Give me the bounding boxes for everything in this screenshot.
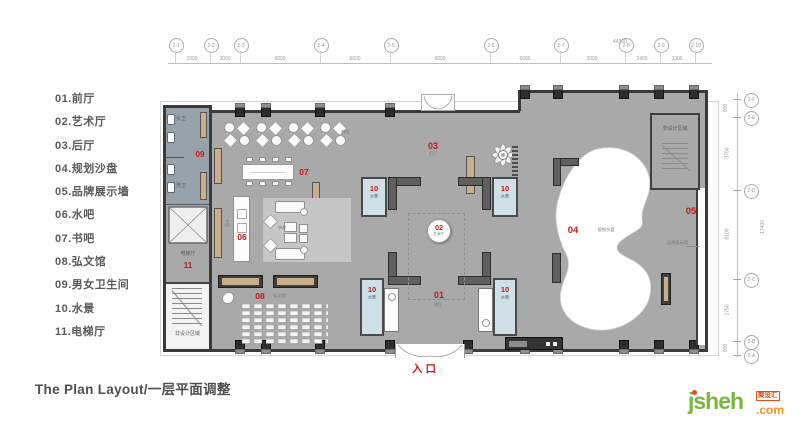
dimension-tick (733, 355, 741, 356)
art-hall-text: 艺术厅 (434, 233, 445, 237)
column (689, 88, 699, 99)
grid-bubble: 2-E (744, 111, 759, 126)
front-hall-text: 前厅 (434, 303, 443, 307)
elevator-hall-label: 电梯厅 (176, 252, 200, 258)
chair (246, 181, 253, 186)
dimension-value: 900 (723, 344, 729, 352)
room-number-07: 07 (296, 168, 312, 177)
legend-item: 07.书吧 (55, 230, 129, 253)
room-number-06: 06 (234, 233, 250, 242)
floor-plan: 女卫 09 男卫 电梯厅 11 非设计区域 (160, 88, 722, 360)
water-text: 水景 (368, 295, 376, 301)
dimension-tick (733, 117, 741, 118)
logo-dot-icon (692, 390, 697, 395)
dimension-value: 8100 (725, 228, 731, 239)
water-text: 水景 (501, 194, 509, 200)
stair-room-ne: 非设计区域 (650, 113, 700, 190)
side-table (299, 224, 308, 233)
chair (285, 181, 292, 186)
dimension-tick (733, 190, 741, 191)
lounge-chair (300, 246, 308, 254)
water-text: 水景 (501, 295, 509, 301)
rear-door (421, 94, 455, 111)
room-number-10: 10 (368, 285, 376, 294)
column (261, 106, 271, 117)
column (553, 88, 563, 99)
legend-item: 06.水吧 (55, 206, 129, 229)
grid-stub (240, 51, 241, 63)
lecture-chairs-grid (242, 304, 328, 346)
legend-item: 11.电梯厅 (55, 323, 129, 346)
water-text: 水景 (370, 194, 378, 200)
wall-bench (466, 156, 475, 194)
chair (246, 157, 253, 162)
logo-tld: .com (756, 403, 784, 417)
grid-stub (695, 51, 696, 63)
grid-stub (625, 51, 626, 63)
sheet-title: The Plan Layout/一层平面调整 (35, 378, 231, 398)
dimension-value: 2400 (636, 56, 647, 62)
water-feature: 10 水景 (361, 177, 387, 217)
chair (272, 181, 279, 186)
water-bar-text: 水吧 (224, 219, 228, 228)
grid-stub (175, 51, 176, 63)
vanity-counter (200, 112, 207, 138)
legend-item: 01.前厅 (55, 90, 129, 113)
planter-wall (482, 177, 491, 210)
screen-wall (512, 146, 518, 178)
non-design-label: 非设计区域 (652, 127, 698, 133)
chair (259, 157, 266, 162)
long-table (242, 164, 294, 180)
dining-cluster (224, 122, 252, 148)
dimension-value: 3000 (219, 56, 230, 62)
stair-room: 非设计区域 (166, 282, 209, 349)
legend-item: 08.弘文馆 (55, 253, 129, 276)
legend-item: 09.男女卫生间 (55, 276, 129, 299)
book-bar-text: 书吧 (341, 130, 350, 134)
grid-bubble: 2-6 (484, 38, 499, 53)
planter-wall (553, 158, 561, 186)
grid-stub (560, 51, 561, 63)
women-toilet-label: 女卫 (176, 117, 186, 123)
room-number-05: 05 (680, 207, 702, 217)
planter-bench (273, 275, 318, 288)
dimension-value: 3750 (725, 147, 731, 158)
room-number-10: 10 (501, 184, 509, 193)
room-number-08: 08 (252, 292, 268, 301)
dimension-tick (733, 279, 741, 280)
jsheh-logo: jsheh 聚设汇 .com (688, 386, 800, 422)
non-design-label: 非设计区域 (166, 332, 209, 338)
restroom-zone: 女卫 09 男卫 (166, 108, 209, 205)
dimension-overall: 44300 (613, 39, 627, 45)
lounge-rug: 书吧 (263, 198, 351, 262)
dimension-overall: 17400 (760, 220, 766, 234)
coffee-table (284, 233, 297, 243)
room-number-11: 11 (180, 262, 196, 270)
column (619, 88, 629, 99)
grid-bubble: 2-4 (314, 38, 329, 53)
top-dimension-line (168, 63, 712, 64)
dimension-value: 6600 (274, 56, 285, 62)
grid-bubble: 2-5 (384, 38, 399, 53)
lecture-hall-text: 弘文馆 (273, 294, 286, 298)
dimension-value: 3750 (725, 304, 731, 315)
legend-item: 02.艺术厅 (55, 113, 129, 136)
elevator-shaft (168, 206, 208, 244)
column (520, 88, 530, 99)
water-feature: 10 水景 (492, 177, 518, 217)
water-feature: 10 水景 (493, 278, 517, 336)
leader-line (687, 246, 699, 247)
column (235, 106, 245, 117)
wall-bench (214, 208, 222, 258)
grid-stub (320, 51, 321, 63)
vanity-counter (200, 172, 207, 200)
men-toilet-label: 男卫 (176, 184, 186, 190)
chair (272, 157, 279, 162)
column (315, 106, 325, 117)
planter-bench (218, 275, 263, 288)
toilet-fixture (167, 182, 175, 193)
floor-plan-sheet: 01.前厅 02.艺术厅 03.后厅 04.规划沙盘 05.品牌展示墙 06.水… (0, 0, 800, 426)
room-number-10: 10 (370, 184, 378, 193)
grid-bubble: 2-B (744, 335, 759, 350)
toilet-fixture (167, 114, 175, 125)
column (385, 106, 395, 117)
service-annex: 女卫 09 男卫 电梯厅 11 非设计区域 (163, 105, 212, 352)
room-number-01: 01 (429, 291, 449, 300)
planter-bench (661, 273, 671, 305)
column (654, 340, 664, 351)
water-feature: 10 水景 (360, 278, 384, 336)
grid-bubble: 2-D (744, 184, 759, 199)
logo-badge: 聚设汇 (756, 391, 780, 401)
dimension-value: 6600 (349, 56, 360, 62)
legend-item: 04.规划沙盘 (55, 160, 129, 183)
dining-cluster (256, 122, 284, 148)
partition-wall (166, 157, 184, 158)
brand-wall-text: 品牌展示墙 (667, 241, 688, 245)
room-number-04: 04 (564, 226, 582, 236)
legend-item: 10.水景 (55, 300, 129, 323)
sand-table-text: 规划沙盘 (598, 228, 615, 232)
chair (259, 181, 266, 186)
chair (285, 157, 292, 162)
grid-bubble: 2-7 (554, 38, 569, 53)
wall-bench (214, 148, 222, 184)
grid-bubble: 2-1 (169, 38, 184, 53)
lounge-chair (263, 214, 279, 230)
room-number-03: 03 (423, 142, 443, 151)
grid-bubble: 2-9 (654, 38, 669, 53)
column (385, 340, 395, 351)
dining-cluster (288, 122, 316, 148)
column (619, 340, 629, 351)
grid-stub (490, 51, 491, 63)
legend-item: 05.品牌展示墙 (55, 183, 129, 206)
dimension-value: 6600 (434, 56, 445, 62)
legend-item: 03.后厅 (55, 137, 129, 160)
dimension-tick (733, 341, 741, 342)
grid-bubble: 2-F (744, 93, 759, 108)
grid-bubble: 2-A (744, 349, 759, 364)
entrance-label: 入口 (412, 361, 439, 376)
planter-wall (552, 253, 561, 283)
grid-bubble: 2-3 (234, 38, 249, 53)
column (654, 88, 664, 99)
grid-bubble: 2-C (744, 273, 759, 288)
room-number-10: 10 (501, 285, 509, 294)
entrance-opening (395, 344, 465, 358)
right-dimension-line (737, 93, 738, 357)
dimension-value: 6600 (519, 56, 530, 62)
toilet-fixture (167, 132, 175, 143)
grid-stub (210, 51, 211, 63)
dimension-value: 3000 (586, 56, 597, 62)
room-legend: 01.前厅 02.艺术厅 03.后厅 04.规划沙盘 05.品牌展示墙 06.水… (55, 90, 129, 346)
grid-bubble: 2-10 (689, 38, 704, 53)
dimension-tick (733, 99, 741, 100)
grid-stub (660, 51, 661, 63)
display-stand (384, 288, 399, 332)
reception-desk (505, 337, 563, 350)
grid-stub (390, 51, 391, 63)
rear-hall-text: 后厅 (429, 152, 438, 156)
art-hall-medallion: 02 艺术厅 (427, 219, 451, 243)
dining-cluster (320, 122, 348, 148)
dimension-value: 900 (723, 104, 729, 112)
grid-bubble: 2-2 (204, 38, 219, 53)
dimension-value: 3300 (671, 56, 682, 62)
toilet-fixture (167, 164, 175, 175)
book-bar-text: 书吧 (278, 226, 287, 230)
room-number-02: 02 (435, 225, 443, 232)
side-table (299, 234, 308, 243)
planter-wall (388, 177, 397, 210)
water-bar-counter (233, 196, 250, 262)
display-stand (478, 288, 493, 332)
room-number-09: 09 (192, 151, 208, 159)
lounge-chair (300, 208, 308, 216)
dimension-value: 3300 (186, 56, 197, 62)
